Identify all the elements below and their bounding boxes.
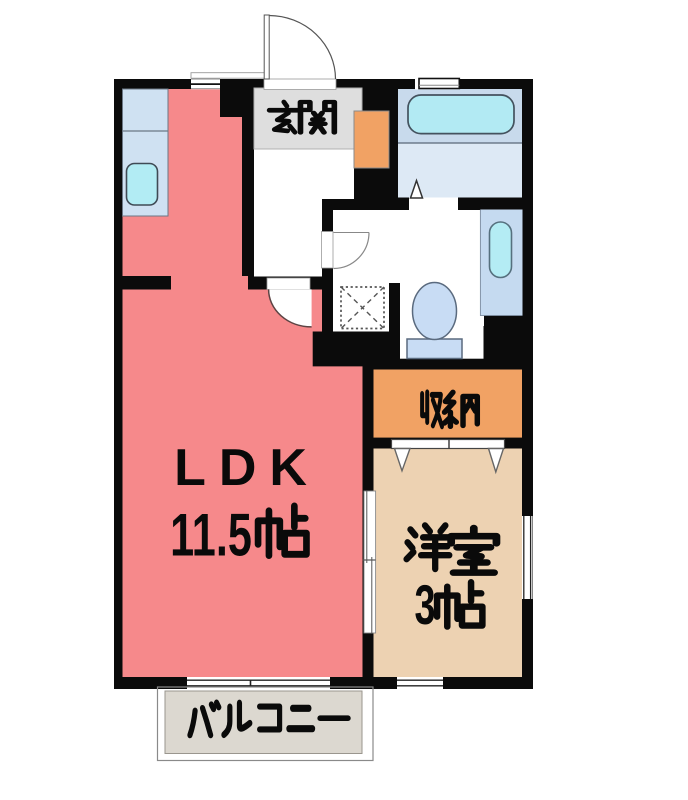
svg-text:11.5: 11.5 — [170, 503, 252, 570]
svg-text:3: 3 — [415, 575, 436, 637]
svg-text:LDK: LDK — [174, 439, 320, 497]
